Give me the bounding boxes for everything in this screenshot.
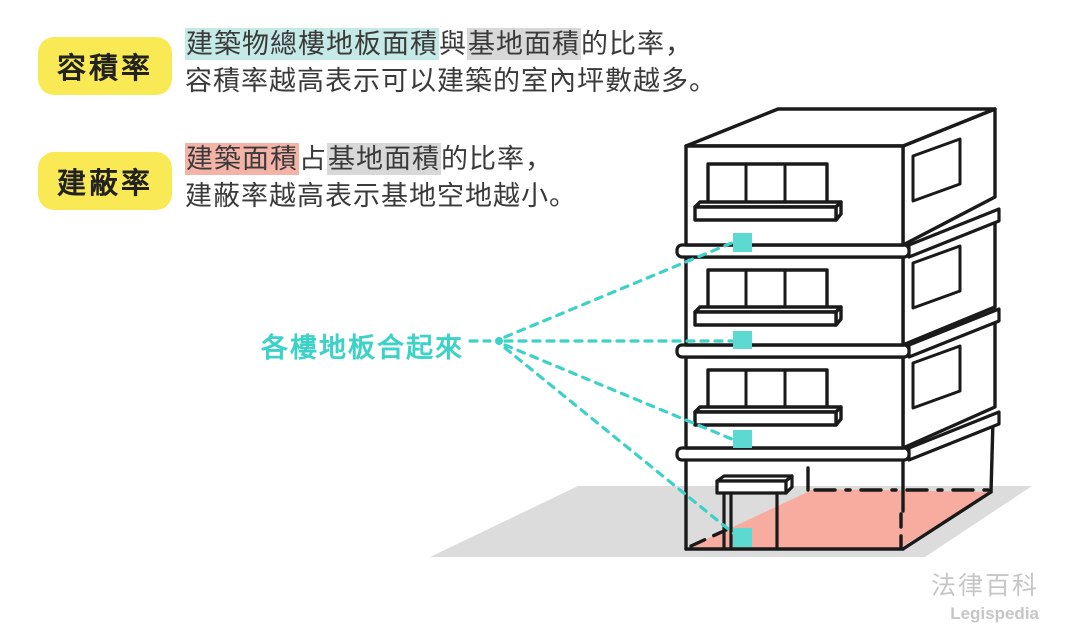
watermark-subtitle: Legispedia [931,604,1039,624]
callout-origin-dot [495,337,503,345]
floor-2-front-window [708,370,827,410]
term-badge-floor-area-ratio: 容積率 [38,37,172,95]
floor-4 [686,109,995,245]
floor-4-front-window [708,164,827,205]
definition-floor-area-ratio: 建築物總樓地板面積與基地面積的比率， 容積率越高表示可以建築的室內坪數越多。 [185,26,717,100]
watermark-title: 法律百科 [931,566,1039,602]
definition-building-coverage-ratio: 建築面積占基地面積的比率， 建蔽率越高表示基地空地越小。 [185,141,577,215]
highlight-site-area: 基地面積 [327,143,441,175]
floor-marker-4 [733,233,752,252]
infographic-canvas: 容積率 建築物總樓地板面積與基地面積的比率， 容積率越高表示可以建築的室內坪數越… [0,0,1065,630]
floors-combined-label: 各樓地板合起來 [261,326,464,365]
highlight-total-floor-area: 建築物總樓地板面積 [185,28,439,60]
floor-marker-1 [733,528,752,547]
floor-marker-2 [733,430,752,448]
porch-canopy-front [717,481,786,493]
term-label: 容積率 [57,45,153,87]
term-label: 建蔽率 [57,160,153,202]
term-badge-building-coverage-ratio: 建蔽率 [38,152,172,210]
floor-2-ledge [695,407,841,425]
definition-line: 建蔽率越高表示基地空地越小。 [185,178,577,215]
floor-3-front-window [708,270,827,310]
plain-text: 占 [299,144,327,174]
definition-line: 建築物總樓地板面積與基地面積的比率， [185,26,717,63]
floor-4-ledge [695,202,841,220]
watermark: 法律百科 Legispedia [931,566,1039,624]
plain-text: 的比率， [441,144,553,174]
highlight-site-area: 基地面積 [467,28,581,60]
plain-text: 的比率， [581,29,693,59]
highlight-building-area: 建築面積 [185,143,299,175]
floor-3-ledge [695,307,841,325]
plain-text: 與 [439,29,467,59]
floor-marker-3 [733,331,752,349]
definition-line: 容積率越高表示可以建築的室內坪數越多。 [185,63,717,100]
definition-line: 建築面積占基地面積的比率， [185,141,577,178]
